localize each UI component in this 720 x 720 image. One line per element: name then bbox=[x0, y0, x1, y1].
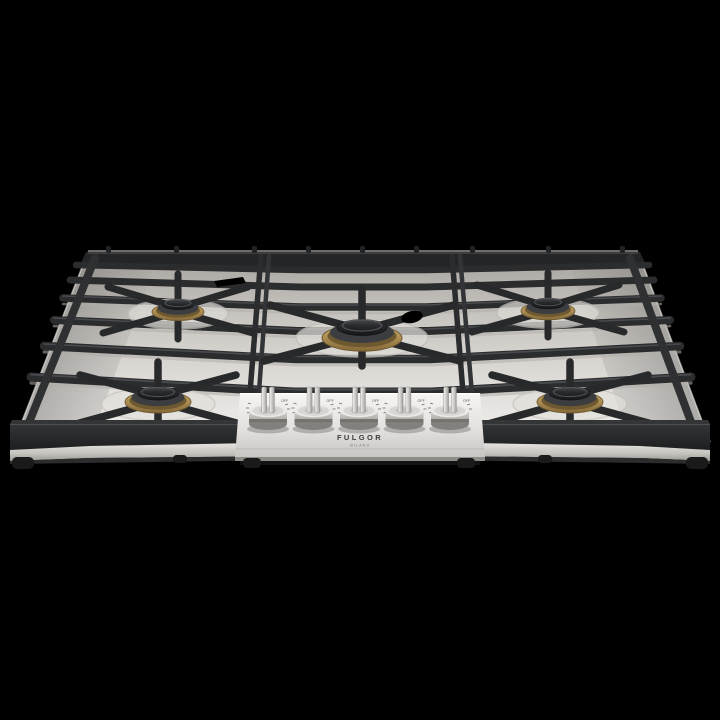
panel-foot-left bbox=[243, 458, 261, 468]
knob-4-marking: OFF bbox=[418, 399, 425, 403]
panel-foot-right bbox=[457, 458, 475, 468]
gas-cooktop-photo: FULGOR MILANO OFF bbox=[0, 0, 720, 720]
product-photo-canvas: FULGOR MILANO OFF bbox=[0, 0, 720, 720]
brand-logo: FULGOR bbox=[337, 433, 383, 442]
control-panel: FULGOR MILANO OFF bbox=[235, 387, 485, 468]
knob-1-marking: OFF bbox=[281, 399, 288, 403]
cooktop: FULGOR MILANO OFF bbox=[10, 246, 710, 469]
knob-2-marking: OFF bbox=[327, 399, 334, 403]
knob-3-marking: OFF bbox=[372, 399, 379, 403]
knob-5-marking: OFF bbox=[463, 399, 470, 403]
brand-logo-sub: MILANO bbox=[350, 444, 370, 448]
foot-right bbox=[686, 457, 708, 469]
foot-left bbox=[12, 457, 34, 469]
